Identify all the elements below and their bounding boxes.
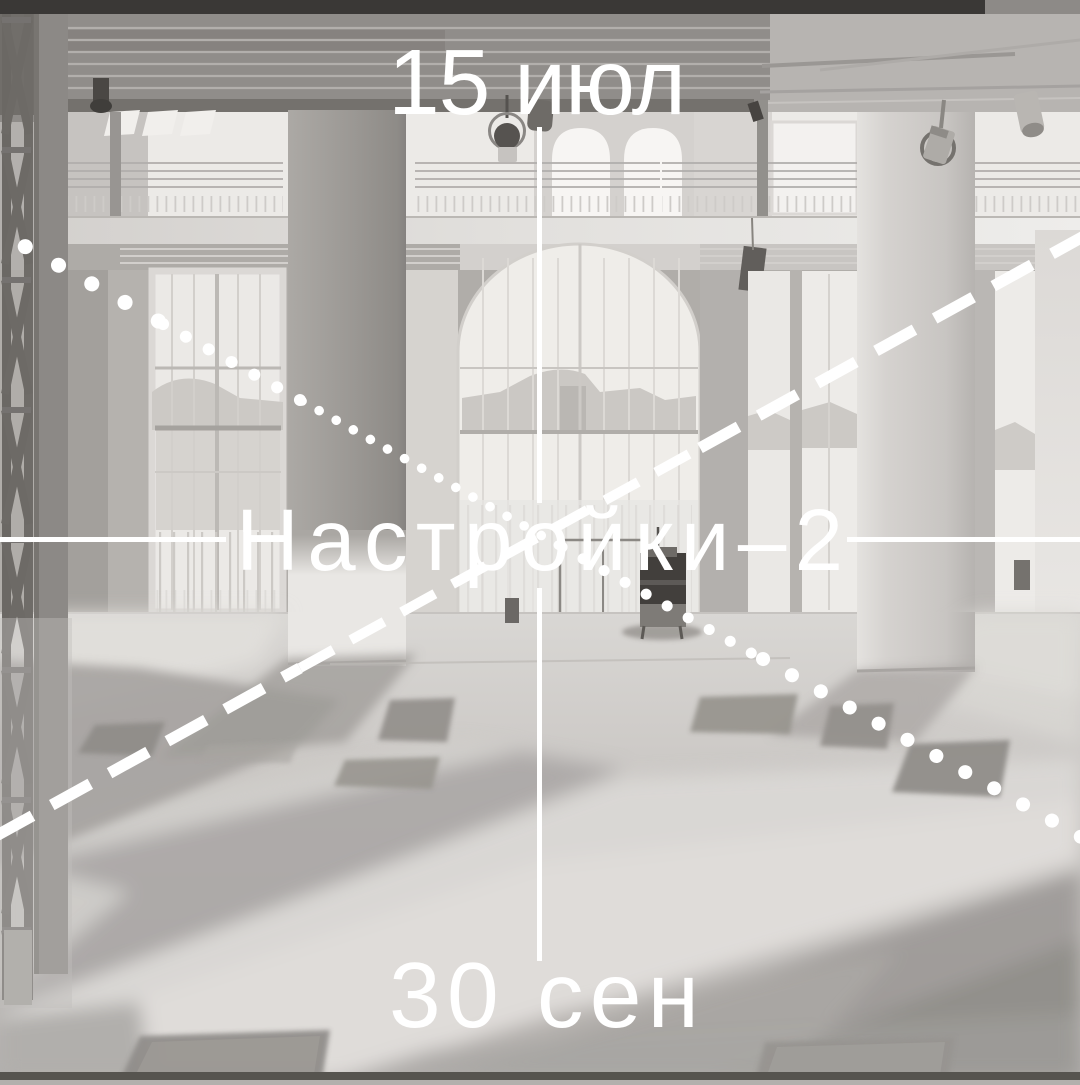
- svg-text:30 сен: 30 сен: [389, 943, 699, 1047]
- svg-text:Настройки–2: Настройки–2: [236, 492, 843, 589]
- svg-text:15 июл: 15 июл: [388, 30, 686, 134]
